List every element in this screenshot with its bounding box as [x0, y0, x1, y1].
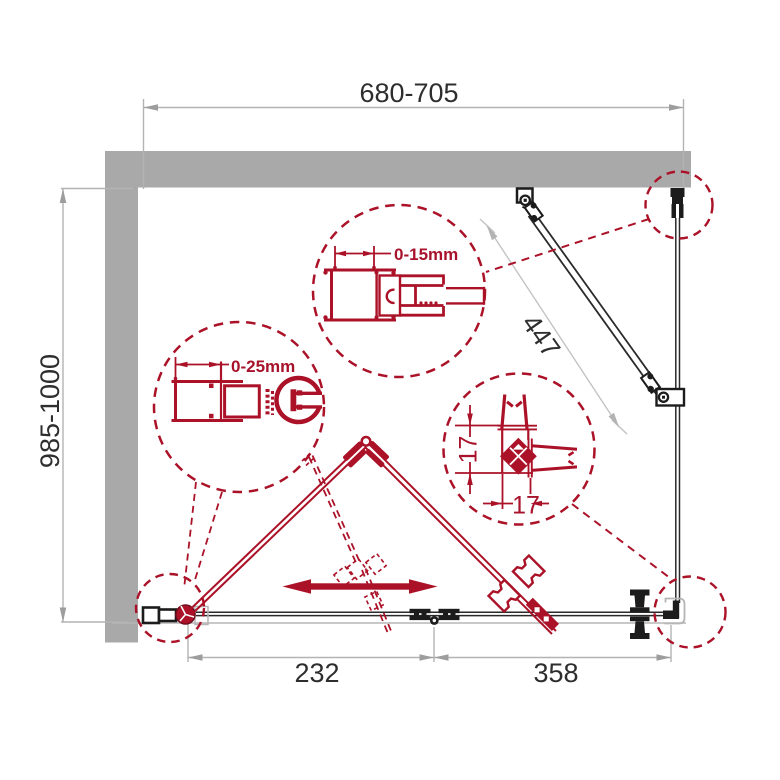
svg-text:985-1000: 985-1000 [35, 354, 65, 468]
svg-text:17: 17 [512, 492, 540, 520]
svg-text:680-705: 680-705 [359, 78, 458, 108]
svg-text:358: 358 [533, 658, 578, 688]
svg-text:232: 232 [294, 658, 339, 688]
svg-text:0-15mm: 0-15mm [394, 245, 458, 264]
svg-text:17: 17 [455, 436, 483, 464]
svg-text:0-25mm: 0-25mm [231, 357, 295, 376]
